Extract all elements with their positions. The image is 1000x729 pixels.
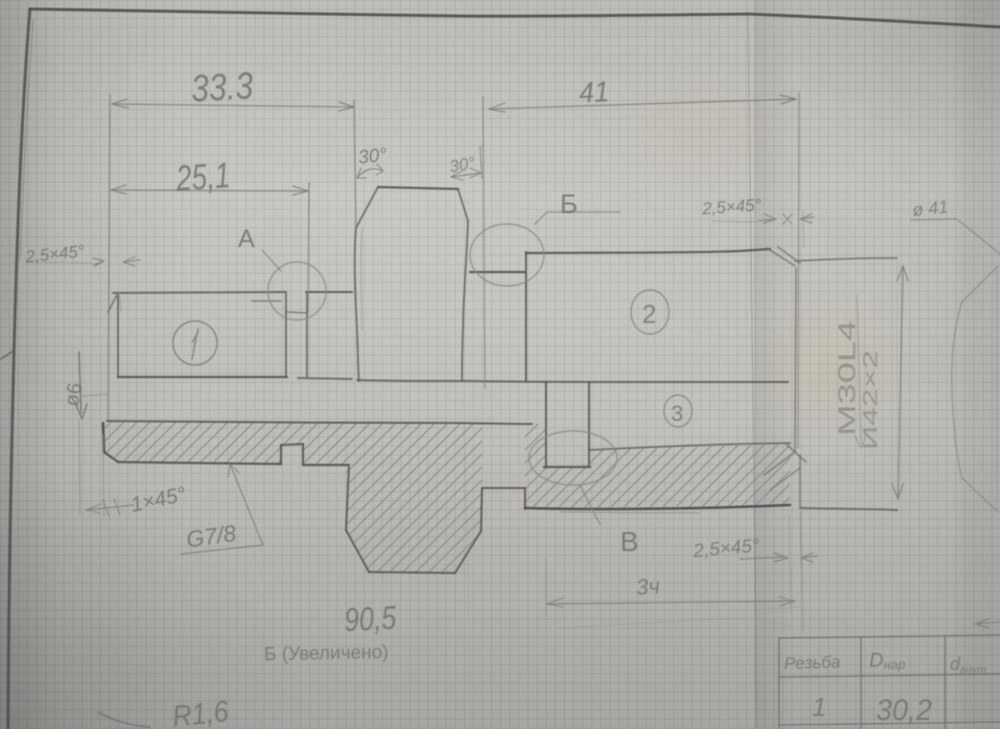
svg-text:90,5: 90,5 — [343, 599, 397, 639]
svg-text:ø 41: ø 41 — [911, 197, 949, 221]
svg-text:2: 2 — [642, 299, 656, 329]
svg-text:3: 3 — [671, 401, 683, 426]
svg-text:30°: 30° — [357, 145, 388, 169]
svg-text:33.3: 33.3 — [190, 65, 254, 110]
svg-text:Б (Увеличено): Б (Увеличено) — [264, 642, 389, 665]
svg-text:А: А — [238, 225, 255, 253]
svg-text:R1,6: R1,6 — [171, 695, 230, 729]
svg-text:M30L4: M30L4 — [834, 320, 861, 436]
svg-text:41: 41 — [578, 76, 610, 110]
svg-text:30,2: 30,2 — [876, 694, 932, 727]
svg-text:Резьба: Резьба — [784, 652, 841, 673]
svg-text:25,1: 25,1 — [174, 154, 231, 199]
svg-text:В: В — [620, 526, 639, 557]
svg-text:1: 1 — [812, 692, 826, 722]
svg-text:Б: Б — [560, 189, 578, 219]
svg-text:3ч: 3ч — [635, 573, 660, 600]
svg-text:И42×2: И42×2 — [860, 350, 882, 450]
svg-text:ø6: ø6 — [61, 381, 87, 408]
